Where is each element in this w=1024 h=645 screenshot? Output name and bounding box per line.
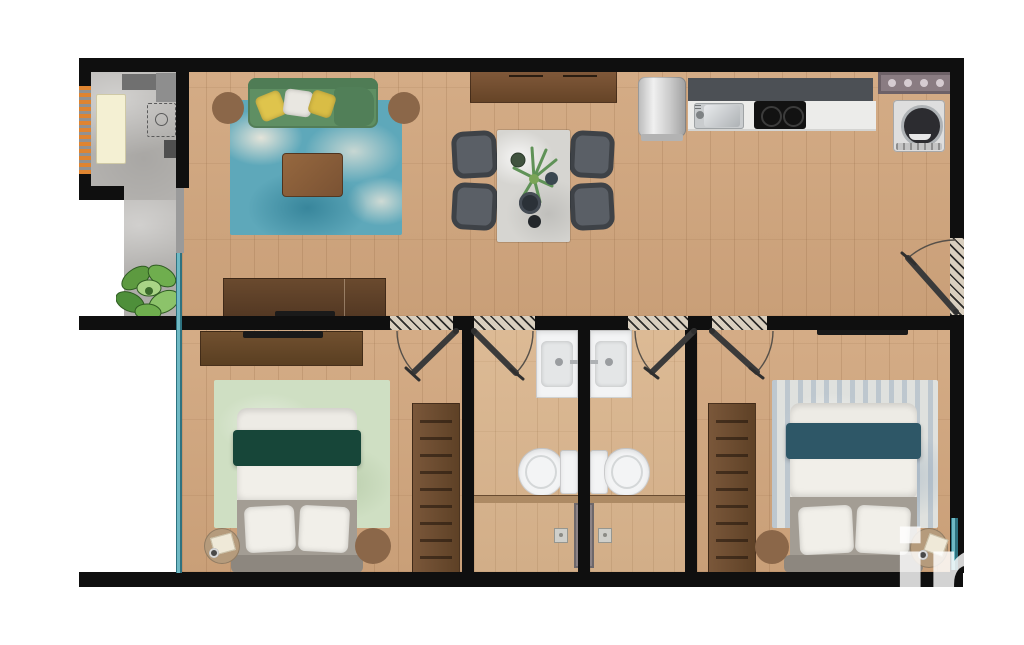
floor-plan: in <box>0 0 1024 645</box>
door-swing-overlay <box>0 0 1024 645</box>
